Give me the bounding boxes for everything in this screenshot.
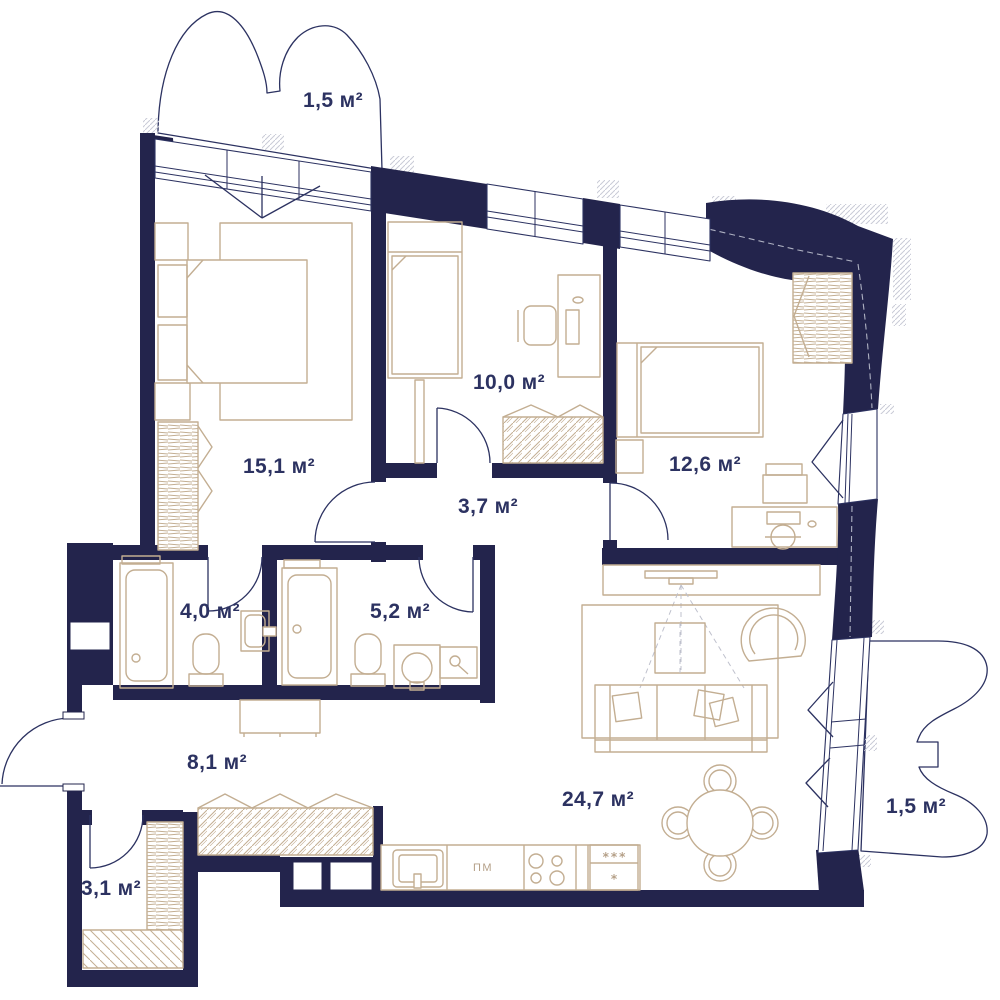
entry-door [0,712,84,791]
nightstand-icon [616,440,643,473]
shelf-icon [766,464,802,475]
furniture-bathroom-2 [282,560,477,690]
dining-set-icon [662,765,778,881]
pillow-icon [694,690,724,720]
fridge-star-label: * [611,872,619,886]
mouse-icon [808,521,816,527]
window-bedroom-2 [487,184,583,244]
furniture-living [582,565,820,881]
furniture-bedroom-3 [616,273,852,549]
window-bedroom-3-right [812,409,877,504]
shelving-icon [147,822,183,930]
tv-icon [645,571,717,584]
toilet-icon [189,634,223,686]
armchair-icon [741,608,805,661]
dishwasher-label: ПМ [473,862,493,874]
wardrobe-icon [158,422,212,550]
nightstand-icon [158,265,187,317]
chair-icon [524,306,556,345]
door-bedroom-main [315,482,375,542]
dining-table-icon [687,790,753,856]
room-label-bathroom-2: 5,2 м² [370,600,430,624]
shelving-icon [83,930,183,968]
furniture-bedroom-main [155,223,352,550]
wardrobe-icon [198,794,373,855]
room-label-bathroom-1: 4,0 м² [180,600,240,624]
single-bed-icon [388,222,462,378]
toilet-icon [351,634,385,686]
window-living-right [806,637,870,853]
mouse-icon [573,297,583,303]
door-bedroom-2 [437,408,490,463]
pillow-icon [612,692,641,721]
pillow-icon [709,697,738,726]
tv-console-icon [603,565,820,595]
nightstand-icon [158,325,187,380]
bathtub-icon [282,568,337,685]
room-label-corridor: 8,1 м² [187,751,247,775]
room-label-bedroom-main: 15,1 м² [243,455,315,479]
shelf-icon [415,380,424,463]
furniture-kitchen [381,845,640,890]
furniture-bedroom-2 [388,222,603,463]
room-label-living-kitchen: 24,7 м² [562,788,634,812]
cabinet-icon [155,223,188,260]
desk-icon [732,507,837,547]
room-label-hall: 3,7 м² [458,495,518,519]
sink-icon [440,647,477,678]
monitor-icon [566,310,579,344]
console-table-icon [240,700,320,733]
washing-machine-icon [394,645,440,690]
floor-plan: 1,5 м² 15,1 м² 10,0 м² 12,6 м² 3,7 м² 4,… [0,0,1000,1000]
cabinet-icon [155,383,190,420]
cabinet-icon [763,475,807,503]
wardrobe-icon [503,405,603,463]
room-label-bedroom-3: 12,6 м² [669,453,741,477]
monitor-icon [767,512,800,524]
furniture-corridor [198,700,373,855]
bathtub-icon [120,563,173,688]
room-label-balcony-right: 1,5 м² [886,795,946,819]
window-bedroom-3-top [620,205,710,261]
room-label-storage: 3,1 м² [81,877,141,901]
balcony-right-outline [861,641,987,857]
wardrobe-icon [793,273,852,363]
sofa-icon [595,685,767,752]
room-label-bedroom-2: 10,0 м² [473,371,545,395]
room-label-balcony-top: 1,5 м² [303,89,363,113]
door-storage [90,815,143,868]
door-bedroom-3 [610,483,668,540]
freezer-stars-label: *** [603,850,628,864]
